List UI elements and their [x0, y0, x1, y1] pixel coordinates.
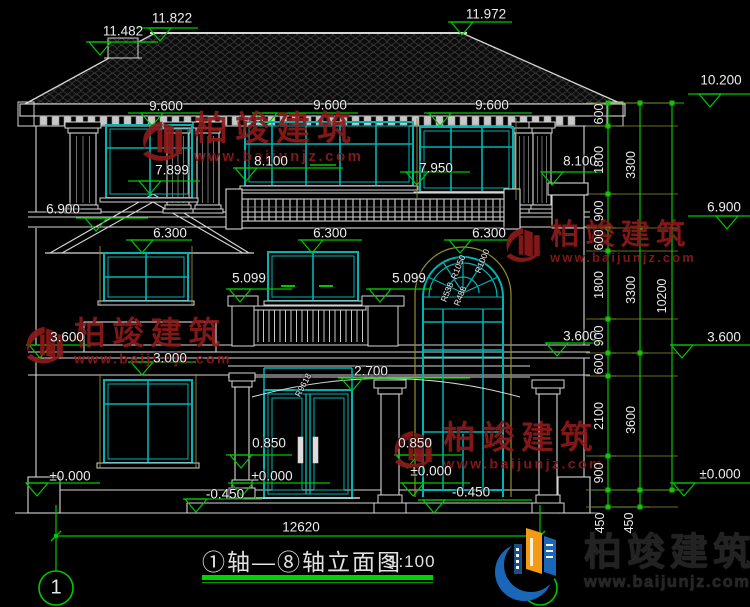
watermark-logo-icon	[138, 112, 190, 170]
title-underline-thin	[202, 582, 433, 583]
brand-name: 柏竣建筑	[584, 534, 750, 572]
brand-text: 柏竣建筑 www.baijunjz.com	[584, 534, 750, 592]
watermark-name: 柏竣建筑	[443, 422, 604, 454]
watermark-name: 柏竣建筑	[74, 318, 232, 350]
watermark-text: 柏竣建筑 www.baijunjz.com	[550, 220, 696, 266]
watermark-name: 柏竣建筑	[194, 112, 363, 146]
watermark: 柏竣建筑 www.baijunjz.com	[502, 220, 696, 270]
watermark-url: www.baijunjz.com	[443, 456, 604, 472]
cad-elevation-screenshot: 柏竣建筑 www.baijunjz.com 柏竣建筑 www.baijunjz.…	[0, 0, 750, 607]
watermark: 柏竣建筑 www.baijunjz.com	[138, 112, 363, 170]
elevation-drawing-canvas	[0, 0, 750, 607]
watermark-logo-icon	[390, 422, 439, 477]
drawing-title: ①轴—⑧轴立面图	[202, 543, 402, 577]
watermark-logo-icon	[22, 318, 70, 372]
watermark-url: www.baijunjz.com	[550, 251, 696, 266]
title-underline	[202, 575, 433, 580]
watermark-url: www.baijunjz.com	[194, 148, 363, 165]
brand-logo-icon	[486, 518, 582, 607]
watermark-text: 柏竣建筑 www.baijunjz.com	[443, 422, 604, 472]
watermark-text: 柏竣建筑 www.baijunjz.com	[74, 318, 232, 367]
brand-logo: 柏竣建筑 www.baijunjz.com	[486, 518, 750, 607]
drawing-scale: 1:100	[388, 552, 436, 572]
watermark: 柏竣建筑 www.baijunjz.com	[390, 422, 604, 477]
axis-bubble-1: 1	[50, 577, 61, 600]
brand-url: www.baijunjz.com	[584, 573, 750, 592]
watermark-logo-icon	[502, 220, 547, 270]
watermark-text: 柏竣建筑 www.baijunjz.com	[194, 112, 363, 165]
watermark-name: 柏竣建筑	[550, 220, 696, 249]
watermark-url: www.baijunjz.com	[74, 351, 232, 367]
watermark: 柏竣建筑 www.baijunjz.com	[22, 318, 232, 372]
